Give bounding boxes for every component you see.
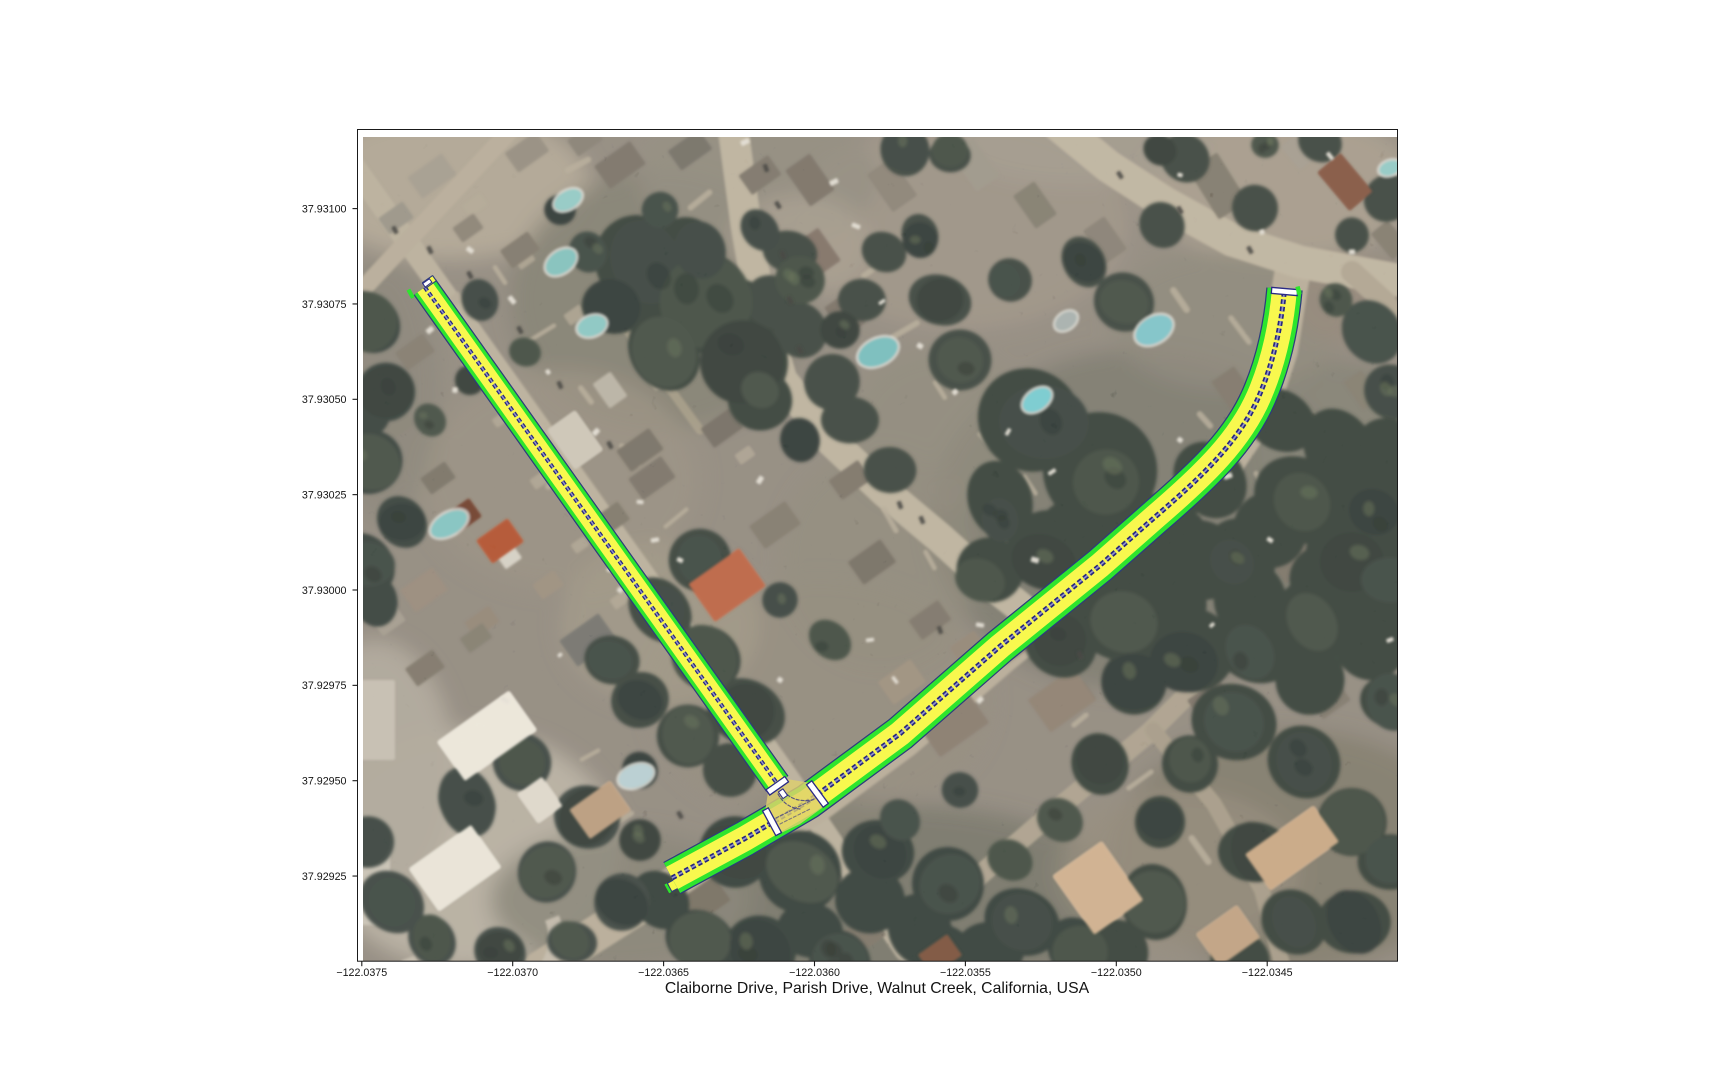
svg-text:−122.0375: −122.0375 <box>336 967 387 979</box>
svg-text:37.92925: 37.92925 <box>302 871 347 883</box>
svg-text:37.93075: 37.93075 <box>302 299 347 311</box>
svg-text:37.93050: 37.93050 <box>302 394 347 406</box>
svg-text:−122.0360: −122.0360 <box>789 967 840 979</box>
svg-text:−122.0350: −122.0350 <box>1091 967 1142 979</box>
svg-text:−122.0365: −122.0365 <box>638 967 689 979</box>
svg-text:37.93025: 37.93025 <box>302 489 347 501</box>
svg-text:−122.0355: −122.0355 <box>940 967 991 979</box>
svg-text:−122.0370: −122.0370 <box>487 967 538 979</box>
svg-text:37.93100: 37.93100 <box>302 203 347 215</box>
svg-text:37.92950: 37.92950 <box>302 776 347 788</box>
svg-text:Claiborne Drive, Parish Drive,: Claiborne Drive, Parish Drive, Walnut Cr… <box>665 980 1090 997</box>
svg-text:37.92975: 37.92975 <box>302 680 347 692</box>
svg-text:−122.0345: −122.0345 <box>1242 967 1293 979</box>
svg-text:37.93000: 37.93000 <box>302 585 347 597</box>
